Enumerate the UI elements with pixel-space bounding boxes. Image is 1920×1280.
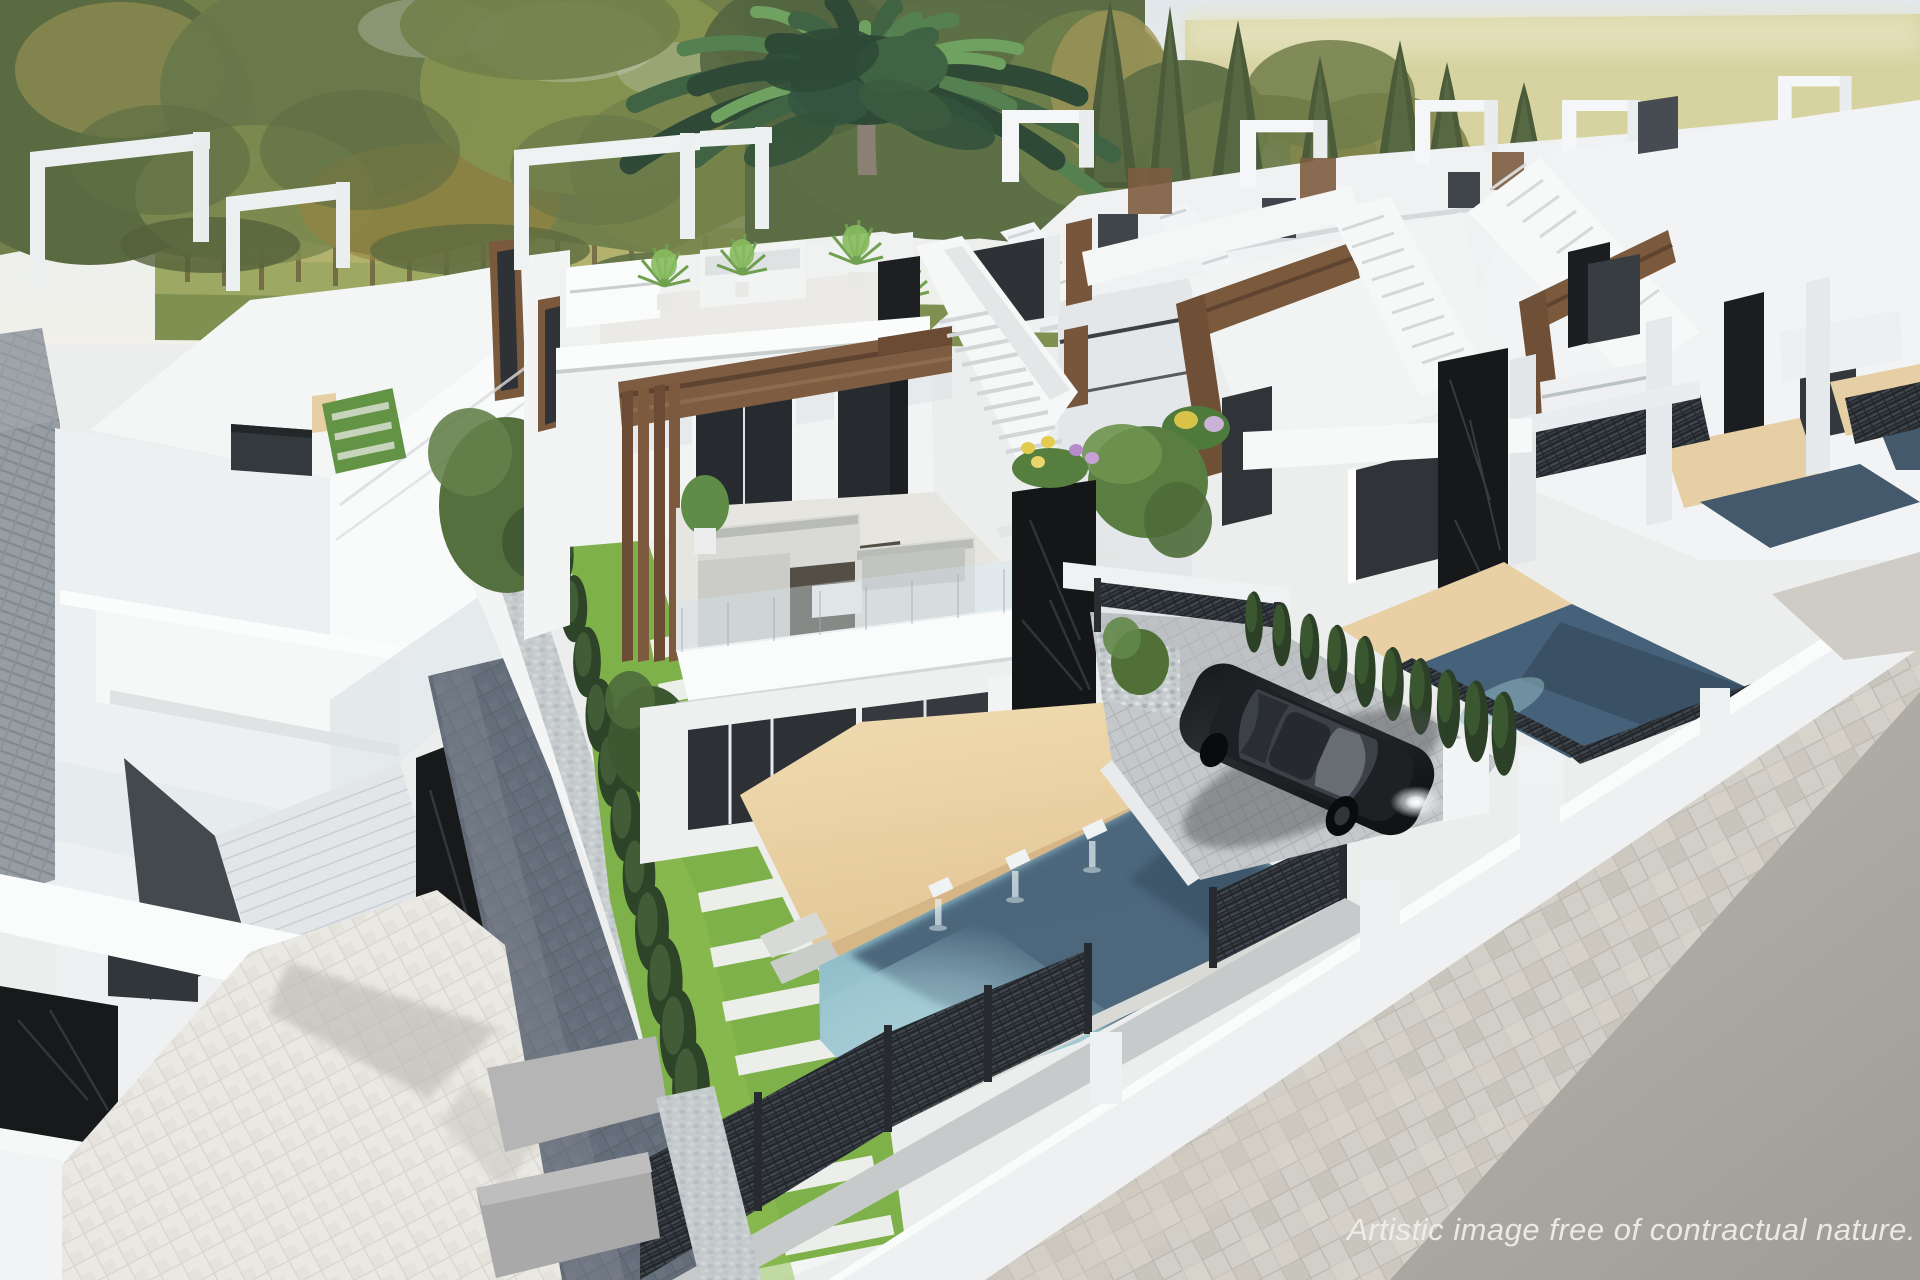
- svg-text:Artistic image free of contrac: Artistic image free of contractual natur…: [1345, 1212, 1916, 1247]
